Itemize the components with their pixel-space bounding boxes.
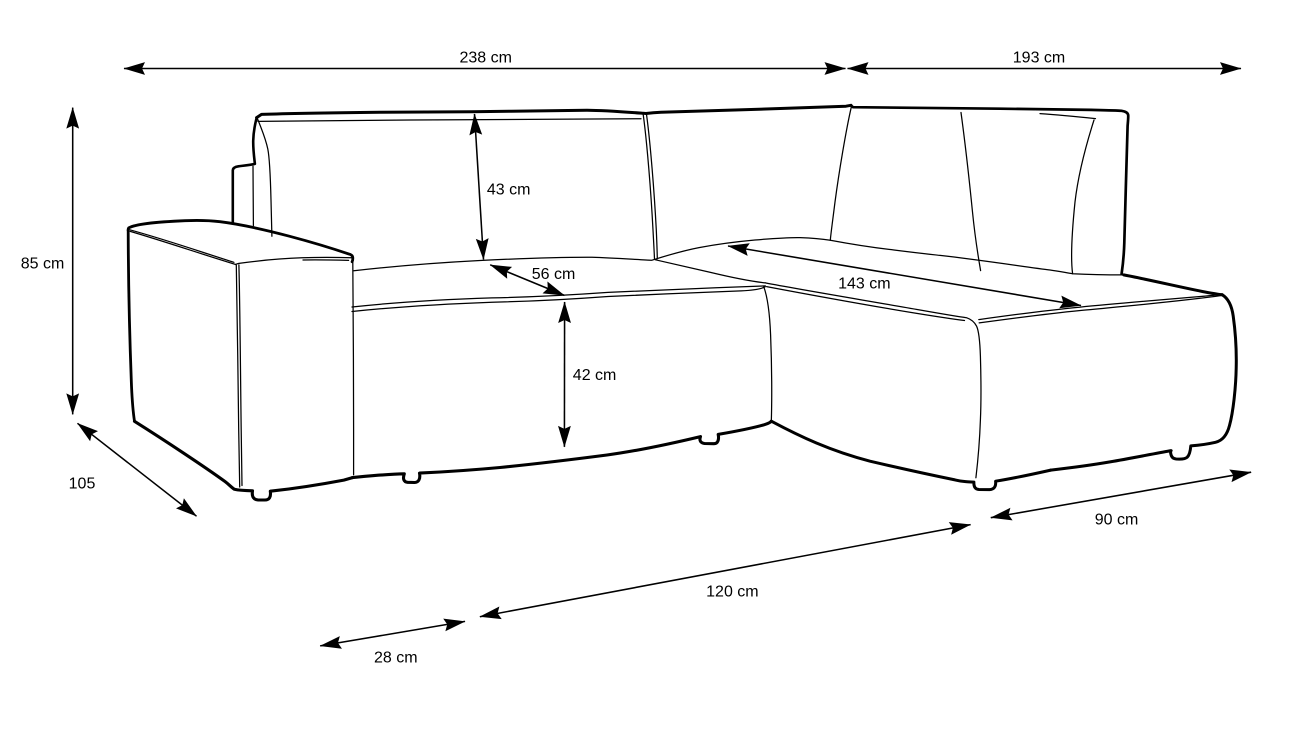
svg-text:143 cm: 143 cm (838, 276, 890, 293)
svg-text:120 cm: 120 cm (706, 584, 758, 601)
svg-text:193 cm: 193 cm (1013, 50, 1065, 67)
svg-text:85 cm: 85 cm (21, 256, 65, 273)
svg-text:43 cm: 43 cm (487, 182, 531, 199)
svg-text:42 cm: 42 cm (573, 367, 617, 384)
svg-text:28 cm: 28 cm (374, 650, 418, 667)
svg-text:56 cm: 56 cm (532, 266, 576, 283)
svg-text:238 cm: 238 cm (459, 50, 511, 67)
svg-text:105: 105 (69, 476, 96, 493)
svg-text:90 cm: 90 cm (1095, 512, 1139, 529)
